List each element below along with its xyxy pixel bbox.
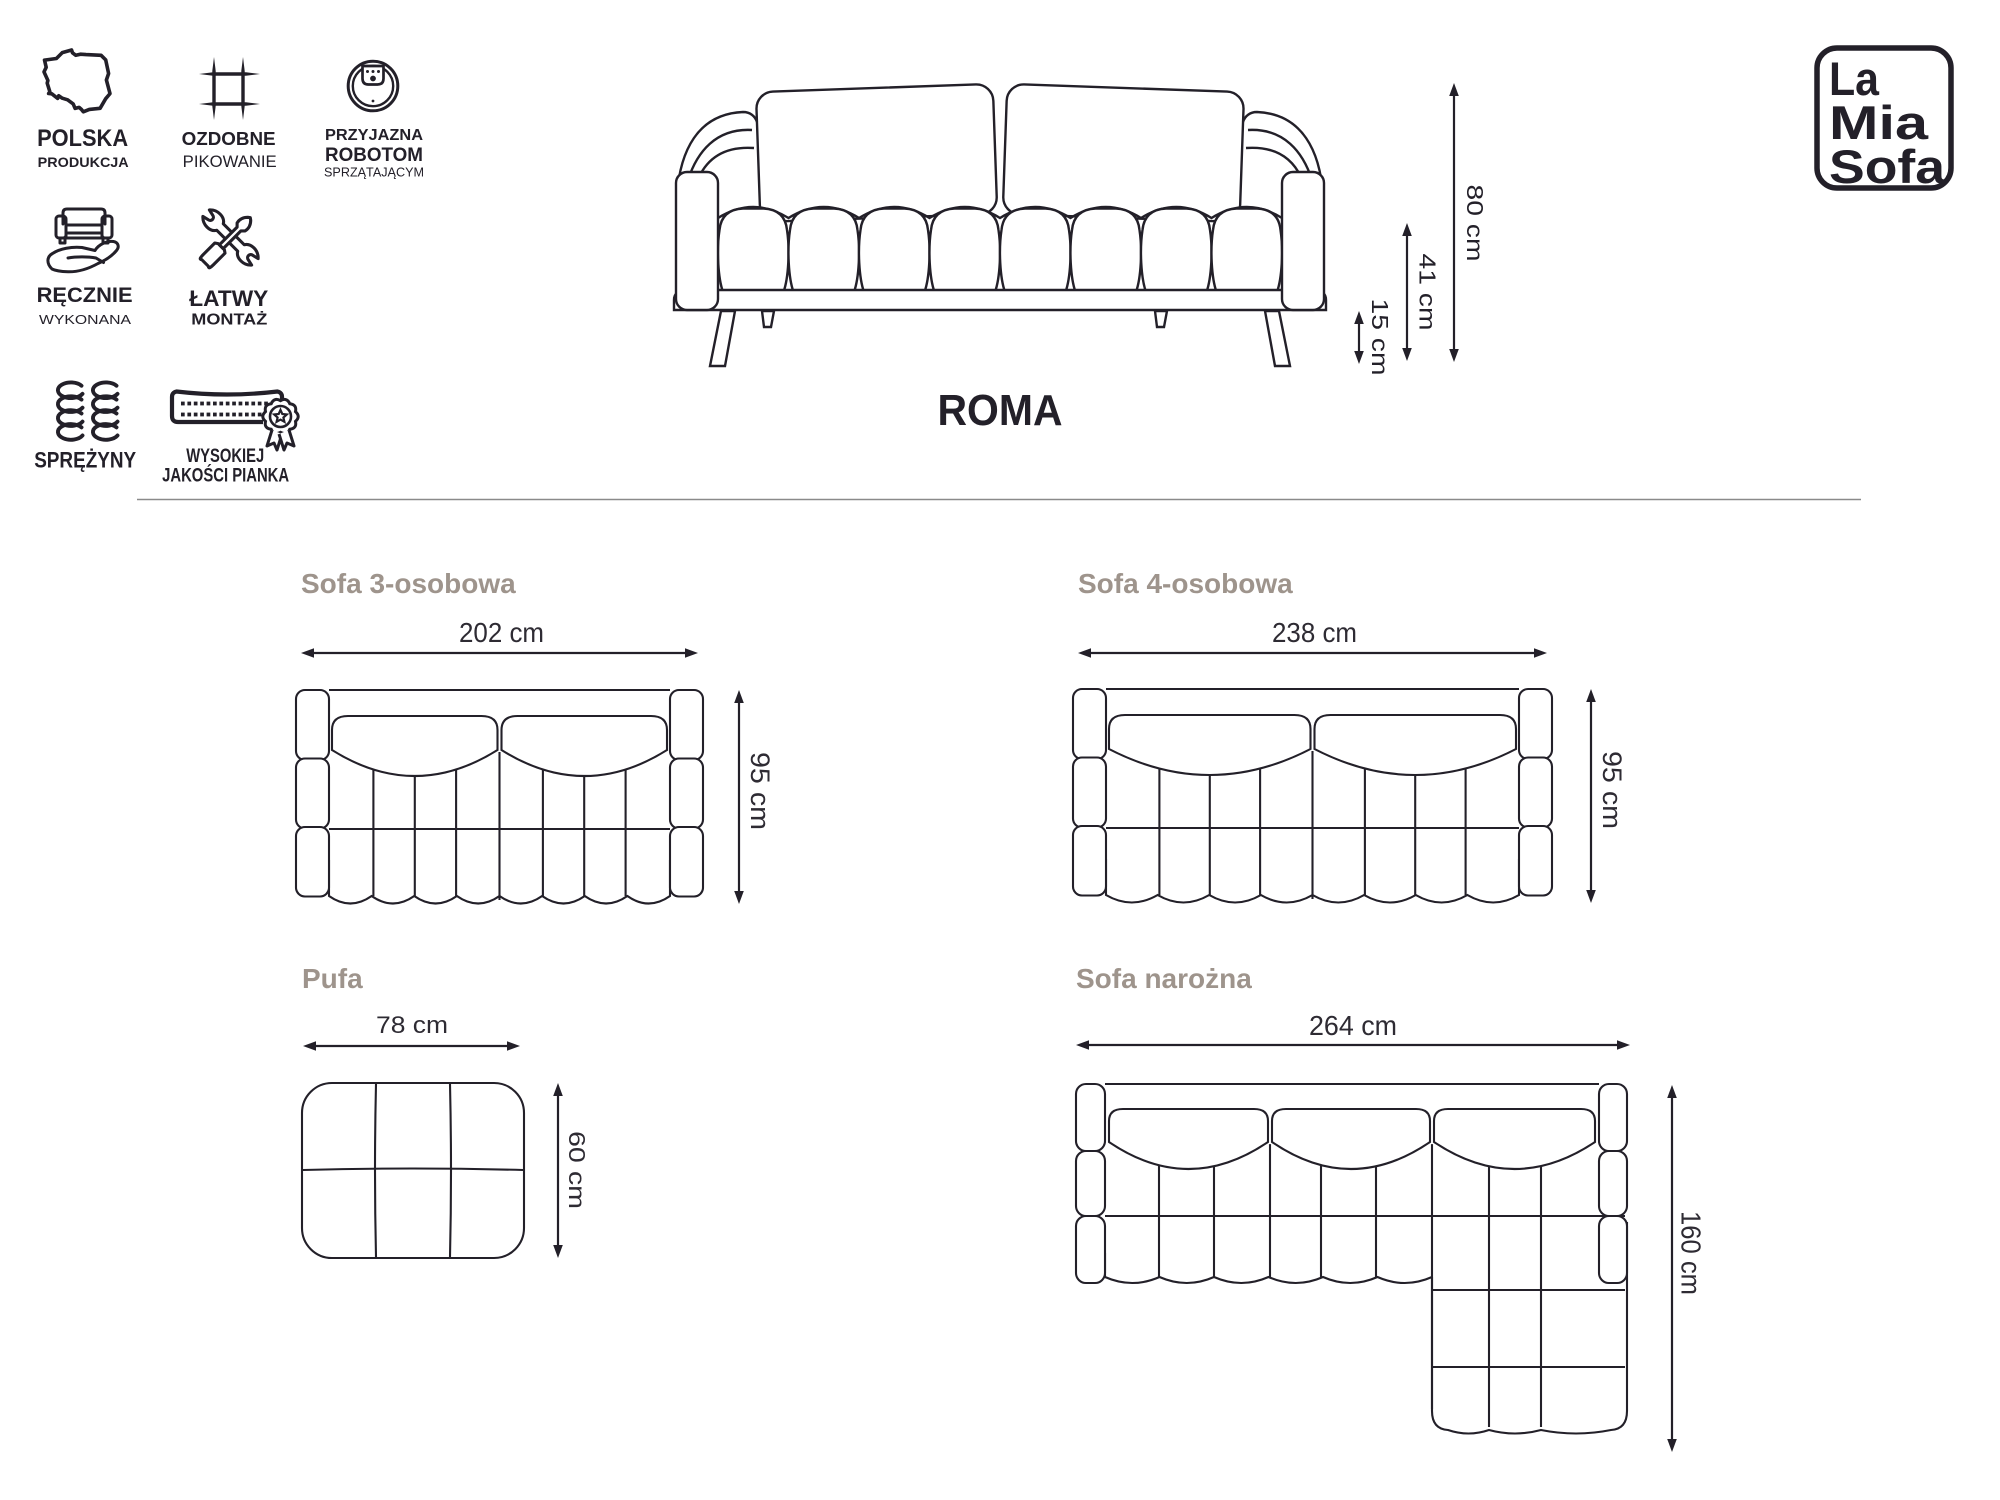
svg-text:60 cm: 60 cm: [564, 1131, 590, 1209]
svg-text:41 cm: 41 cm: [1415, 254, 1441, 331]
svg-text:78 cm: 78 cm: [376, 1012, 448, 1039]
svg-text:264 cm: 264 cm: [1309, 1010, 1397, 1041]
svg-text:Pufa: Pufa: [302, 963, 363, 994]
svg-text:Sofa narożna: Sofa narożna: [1076, 963, 1252, 994]
svg-text:SPRZĄTAJĄCYM: SPRZĄTAJĄCYM: [324, 166, 424, 180]
svg-text:Sofa: Sofa: [1829, 140, 1946, 193]
svg-text:ROBOTOM: ROBOTOM: [325, 144, 423, 166]
svg-text:95 cm: 95 cm: [745, 752, 775, 830]
svg-text:PRZYJAZNA: PRZYJAZNA: [325, 127, 423, 144]
svg-text:OZDOBNE: OZDOBNE: [182, 129, 276, 149]
svg-text:SPRĘŻYNY: SPRĘŻYNY: [34, 448, 136, 473]
svg-text:JAKOŚCI PIANKA: JAKOŚCI PIANKA: [162, 464, 289, 486]
svg-text:95 cm: 95 cm: [1597, 751, 1627, 829]
svg-text:POLSKA: POLSKA: [37, 125, 128, 152]
svg-text:ROMA: ROMA: [938, 386, 1063, 435]
svg-text:WYSOKIEJ: WYSOKIEJ: [186, 446, 264, 467]
svg-text:160 cm: 160 cm: [1676, 1211, 1707, 1295]
svg-text:238 cm: 238 cm: [1272, 617, 1357, 648]
svg-text:PIKOWANIE: PIKOWANIE: [183, 153, 277, 171]
svg-text:80 cm: 80 cm: [1462, 185, 1488, 262]
svg-text:RĘCZNIE: RĘCZNIE: [37, 283, 133, 307]
svg-text:15 cm: 15 cm: [1367, 299, 1393, 376]
svg-text:PRODUKCJA: PRODUKCJA: [38, 154, 129, 170]
svg-text:ŁATWY: ŁATWY: [189, 286, 268, 311]
svg-text:WYKONANA: WYKONANA: [39, 312, 132, 327]
svg-text:Sofa 4-osobowa: Sofa 4-osobowa: [1078, 568, 1293, 599]
svg-text:Sofa 3-osobowa: Sofa 3-osobowa: [301, 568, 516, 599]
svg-text:MONTAŻ: MONTAŻ: [191, 311, 268, 329]
svg-text:202 cm: 202 cm: [459, 617, 544, 648]
